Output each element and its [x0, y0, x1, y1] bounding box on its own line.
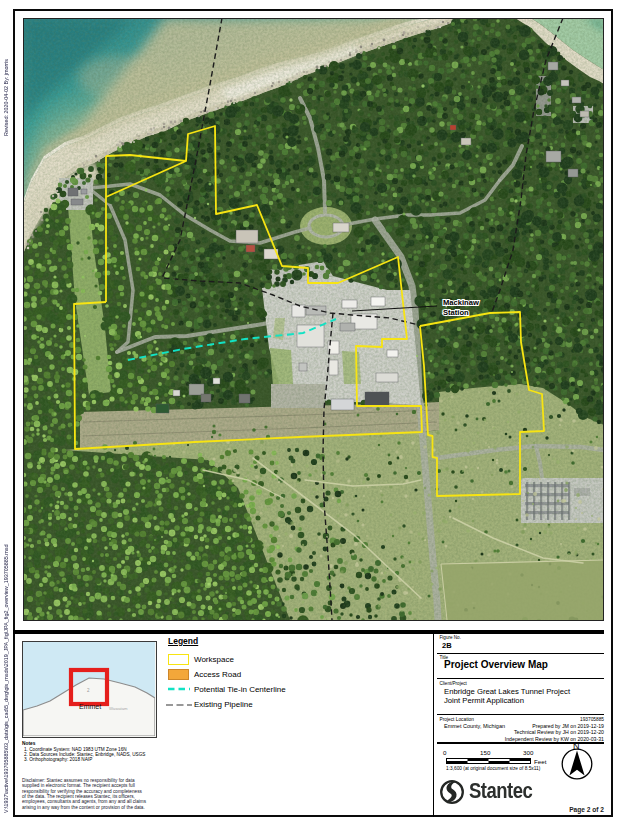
svg-text:Mackinaw: Mackinaw [443, 298, 479, 307]
svg-text:Wawatam: Wawatam [109, 706, 128, 711]
svg-text:Station: Station [443, 308, 469, 317]
svg-text:Emmet: Emmet [79, 703, 101, 710]
